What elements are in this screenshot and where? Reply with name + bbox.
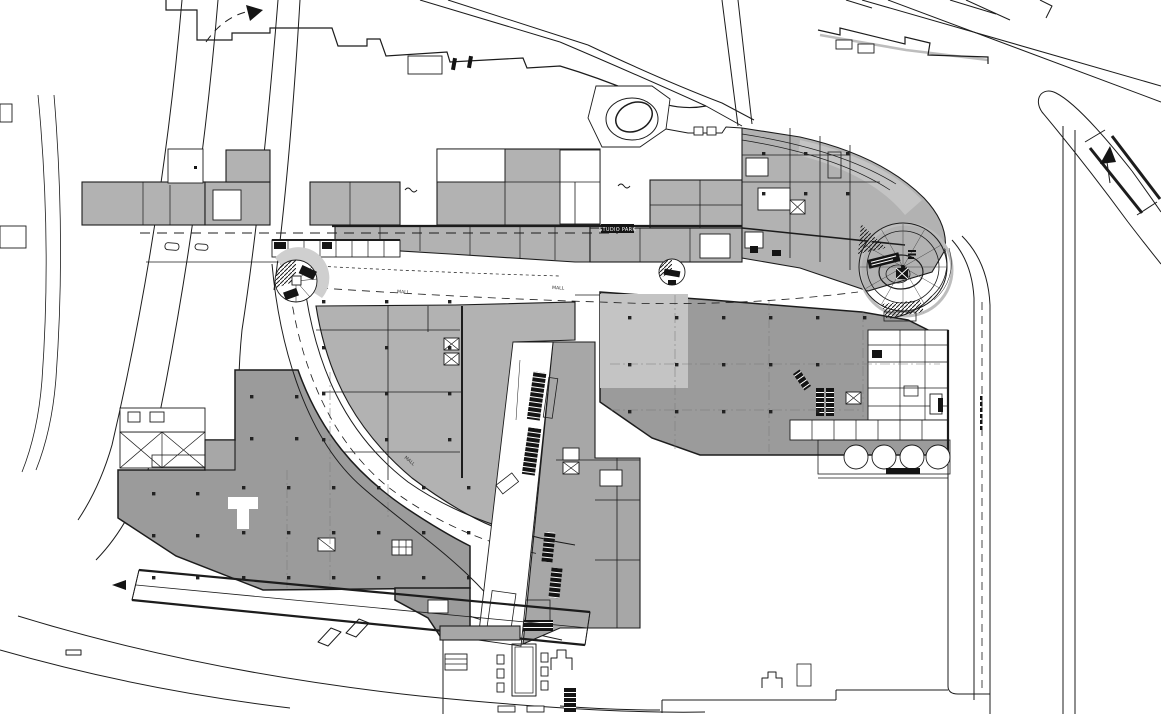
column-dot (152, 534, 155, 537)
column-dot (250, 437, 253, 440)
column-dot (762, 152, 765, 155)
column-dot (385, 438, 388, 441)
spiral-stair-mid-corridor (659, 259, 685, 285)
column-dot (722, 410, 725, 413)
site-building-footprint (0, 104, 12, 122)
tree (844, 445, 868, 469)
south-plaza-structures (440, 626, 576, 714)
paving-marking (318, 628, 341, 646)
column-dot (804, 192, 807, 195)
column-dot (385, 300, 388, 303)
ramp-direction-arrow (112, 580, 126, 590)
column-dot (322, 346, 325, 349)
elevator-box (563, 462, 579, 474)
column-dot (769, 363, 772, 366)
column-dot (422, 486, 425, 489)
column-dot (385, 346, 388, 349)
mall-label: MALL (397, 289, 410, 296)
column-dot (467, 531, 470, 534)
column-dot (196, 534, 199, 537)
column-dot (295, 395, 298, 398)
elevator-box (846, 392, 861, 404)
column-dot (816, 363, 819, 366)
column-dot (287, 576, 290, 579)
escalator (826, 388, 834, 416)
column-dot (322, 438, 325, 441)
column-dot (722, 363, 725, 366)
column-dot (804, 152, 807, 155)
column-dot (332, 486, 335, 489)
column-dot (628, 410, 631, 413)
site-plan-drawing: STUDIO PARK MALL MALL MALL (0, 0, 1161, 714)
site-building-footprint (0, 226, 26, 248)
tree (926, 445, 950, 469)
column-dot (152, 492, 155, 495)
column-dot (448, 438, 451, 441)
column-dot (287, 531, 290, 534)
column-dot (467, 576, 470, 579)
column-dot (722, 316, 725, 319)
studio-park-label: STUDIO PARK (599, 224, 636, 233)
route-arrowhead (246, 5, 263, 21)
column-dot (322, 300, 325, 303)
column-dot (769, 316, 772, 319)
column-dot (628, 316, 631, 319)
column-dot (762, 192, 765, 195)
hatched-shaft (797, 664, 811, 686)
column-dot (322, 392, 325, 395)
column-dot (448, 300, 451, 303)
column-dot (422, 576, 425, 579)
column-dot (332, 576, 335, 579)
column-dot (675, 410, 678, 413)
kiosk-footprint (408, 56, 442, 74)
column-dot (816, 316, 819, 319)
column-dot (628, 363, 631, 366)
column-dot (675, 363, 678, 366)
bus-vehicle (195, 244, 208, 251)
tree (872, 445, 896, 469)
loading-dock (120, 408, 235, 470)
column-dot (295, 437, 298, 440)
column-dot (242, 486, 245, 489)
mall-label: MALL (552, 285, 565, 292)
column-dot (377, 486, 380, 489)
column-dot (242, 531, 245, 534)
studio-park-label-text: STUDIO PARK (599, 227, 636, 233)
column-dot (422, 531, 425, 534)
tree (900, 445, 924, 469)
column-dot (863, 316, 866, 319)
column-dot (250, 395, 253, 398)
column-dot (385, 392, 388, 395)
break-mark (618, 184, 630, 188)
column-dot (196, 492, 199, 495)
column-dot (377, 576, 380, 579)
hatched-column (564, 688, 576, 712)
column-dot (769, 410, 772, 413)
plaza-stair (512, 644, 536, 696)
column-dot (448, 392, 451, 395)
column-dot (675, 316, 678, 319)
bus-vehicle (165, 243, 179, 251)
column-dot (846, 192, 849, 195)
elevator-box (444, 353, 459, 365)
column-dot (377, 531, 380, 534)
break-mark (405, 188, 417, 192)
road-hairpin-ramp (1038, 91, 1161, 264)
dashed-route-arrow (206, 11, 250, 42)
rotunda-elevator (896, 268, 908, 279)
column-dot (816, 410, 819, 413)
column-dot (467, 486, 470, 489)
column-dot (448, 346, 451, 349)
northeast-wing (742, 128, 945, 291)
facade-bays (790, 420, 948, 440)
column-dot (152, 576, 155, 579)
column-dot (287, 486, 290, 489)
column-dot (846, 152, 849, 155)
plaza-circular-feature (588, 86, 670, 147)
elevator-box (790, 200, 805, 214)
column-dot (332, 531, 335, 534)
elevator-box (444, 338, 459, 350)
